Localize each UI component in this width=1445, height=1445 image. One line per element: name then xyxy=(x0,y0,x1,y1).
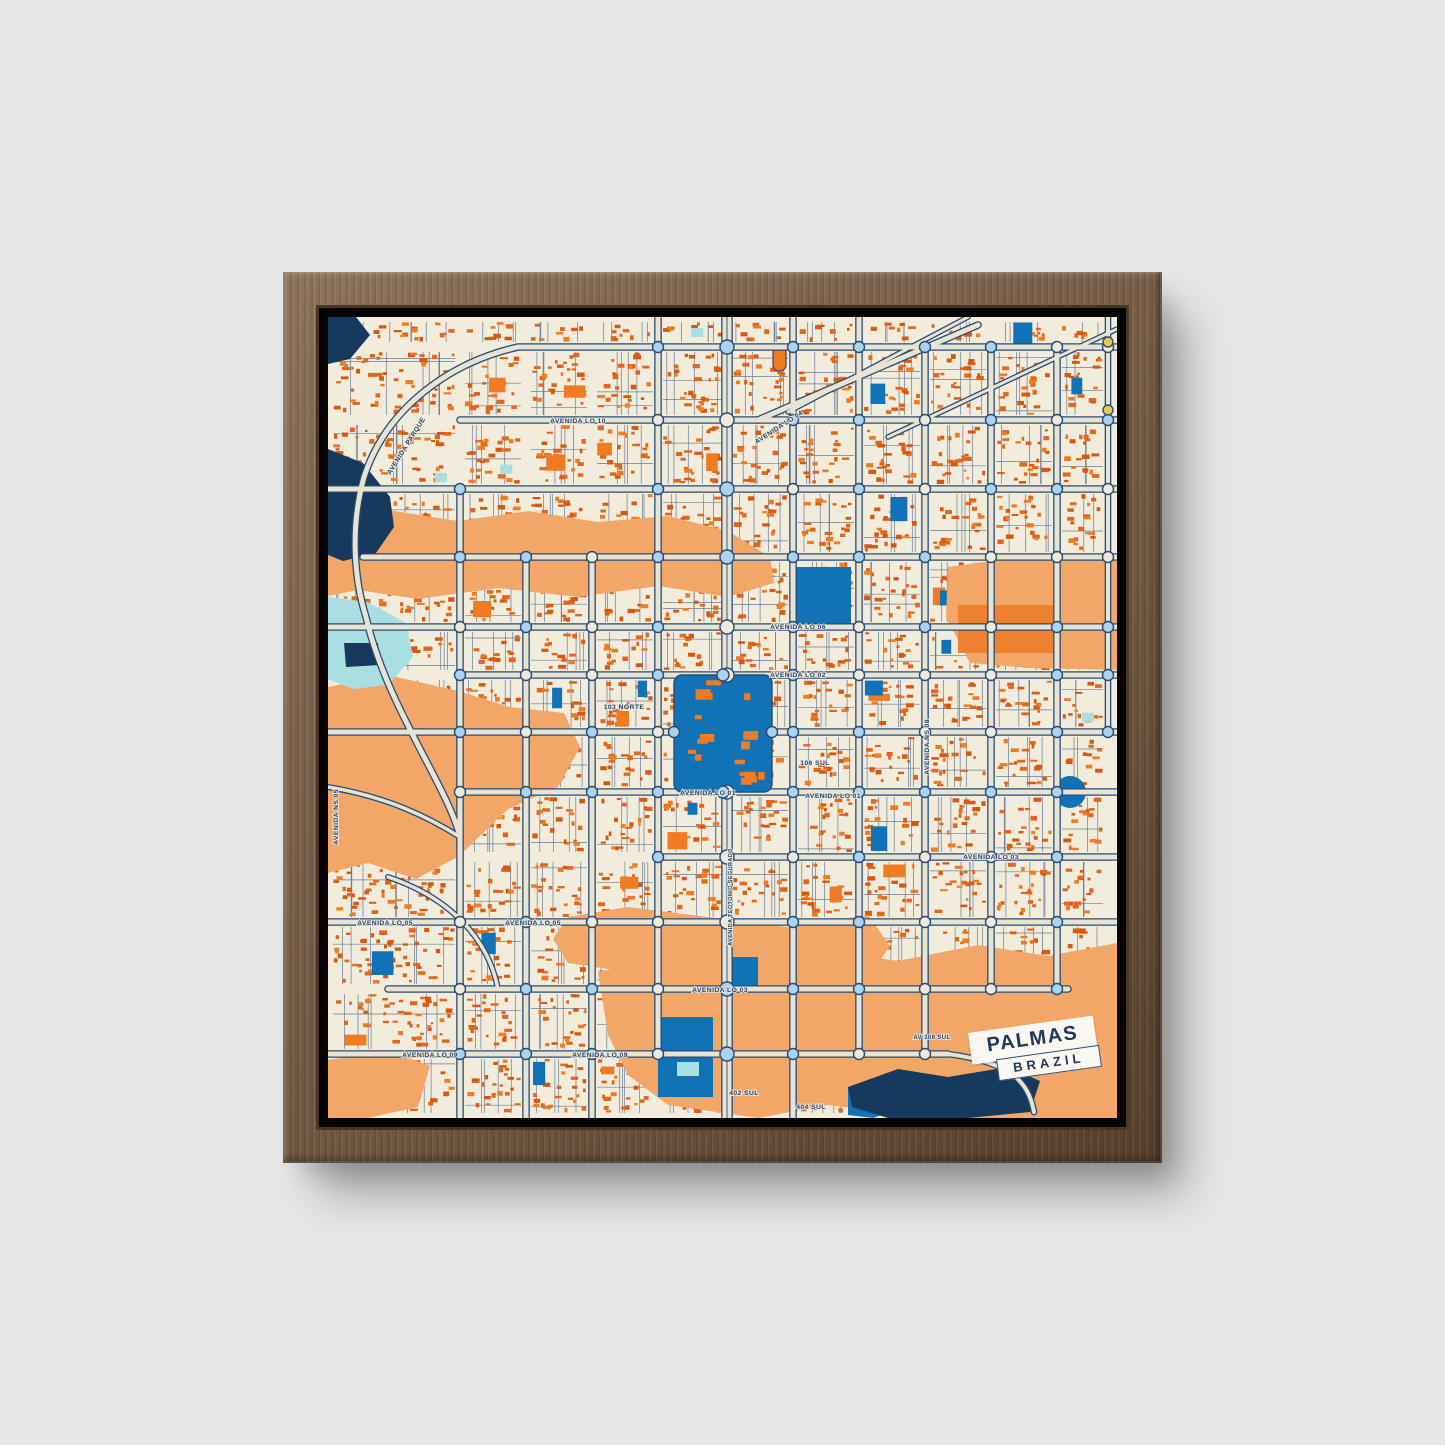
frame-inner-shadow-gap: AVENIDA LO 10AVENIDA LO 04AVENIDA PARQUE… xyxy=(316,305,1129,1130)
svg-text:AVENIDA LO 05: AVENIDA LO 05 xyxy=(505,920,561,927)
svg-text:AVENIDA LO 01: AVENIDA LO 01 xyxy=(805,793,861,800)
svg-text:402 SUL: 402 SUL xyxy=(729,1090,759,1097)
svg-text:AV 308 SUL: AV 308 SUL xyxy=(913,1035,950,1041)
svg-text:AVENIDA LO 09: AVENIDA LO 09 xyxy=(402,1052,458,1059)
svg-text:AVENIDA LO 03: AVENIDA LO 03 xyxy=(692,987,748,994)
palmas-city-map: AVENIDA LO 10AVENIDA LO 04AVENIDA PARQUE… xyxy=(328,317,1117,1118)
svg-text:AVENIDA LO 05: AVENIDA LO 05 xyxy=(357,920,413,927)
wall: AVENIDA LO 10AVENIDA LO 04AVENIDA PARQUE… xyxy=(0,0,1445,1445)
svg-text:AVENIDA LO 06: AVENIDA LO 06 xyxy=(770,624,826,631)
svg-text:AVENIDA NS 05: AVENIDA NS 05 xyxy=(333,789,340,845)
picture-frame: AVENIDA LO 10AVENIDA LO 04AVENIDA PARQUE… xyxy=(283,272,1162,1163)
svg-text:AVENIDA LO 02: AVENIDA LO 02 xyxy=(770,672,826,679)
svg-text:AVENIDA TEOTONIO SEGURADO: AVENIDA TEOTONIO SEGURADO xyxy=(728,848,734,946)
svg-text:106 SUL: 106 SUL xyxy=(800,760,830,767)
svg-text:AVENIDA NS 08: AVENIDA NS 08 xyxy=(924,719,931,775)
svg-text:AVENIDA LO 09: AVENIDA LO 09 xyxy=(572,1052,628,1059)
svg-text:AVENIDA LO 03: AVENIDA LO 03 xyxy=(963,854,1019,861)
svg-text:AVENIDA LO 10: AVENIDA LO 10 xyxy=(550,418,606,425)
frame-wood: AVENIDA LO 10AVENIDA LO 04AVENIDA PARQUE… xyxy=(283,272,1162,1163)
map-canvas: AVENIDA LO 10AVENIDA LO 04AVENIDA PARQUE… xyxy=(328,317,1117,1118)
svg-text:103 NORTE: 103 NORTE xyxy=(604,704,645,711)
svg-text:AVENIDA LO 01: AVENIDA LO 01 xyxy=(680,790,736,797)
svg-text:404 SUL: 404 SUL xyxy=(796,1104,826,1111)
